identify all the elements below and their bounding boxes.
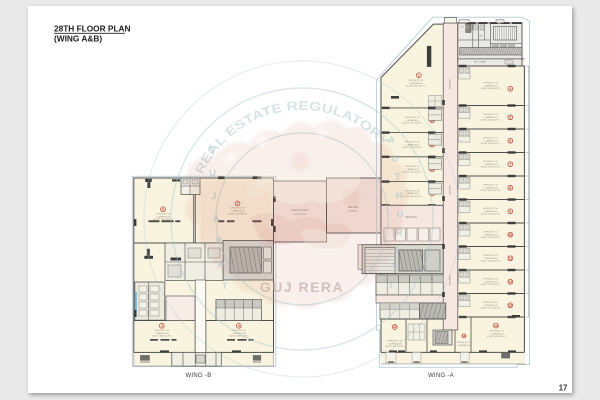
svg-text:OFFICE NO. 01: OFFICE NO. 01 — [405, 166, 421, 168]
svg-text:OFFICE NO. 01: OFFICE NO. 01 — [483, 83, 499, 85]
svg-text:OFFICE NO. 01: OFFICE NO. 01 — [483, 138, 499, 140]
svg-text:SQ.MT. (000 SQ.FT.): SQ.MT. (000 SQ.FT.) — [481, 214, 501, 216]
svg-text:C. AREA 00.00: C. AREA 00.00 — [405, 119, 420, 122]
svg-text:SQ.MT. (000 SQ.FT.): SQ.MT. (000 SQ.FT.) — [481, 167, 501, 169]
svg-text:C. AREA 00.00: C. AREA 00.00 — [409, 82, 424, 85]
svg-text:4: 4 — [238, 324, 240, 328]
svg-text:C. AREA 00.00: C. AREA 00.00 — [156, 215, 171, 218]
svg-text:C. AREA 00.00: C. AREA 00.00 — [484, 280, 499, 283]
svg-text:C. AREA 00.00: C. AREA 00.00 — [484, 233, 499, 236]
svg-text:C. AREA 00.00: C. AREA 00.00 — [405, 143, 420, 146]
svg-text:WING -A: WING -A — [428, 373, 454, 379]
svg-text:GUJ RERA: GUJ RERA — [260, 279, 344, 295]
svg-text:SQ.MT. (000 SQ.FT.): SQ.MT. (000 SQ.FT.) — [402, 123, 422, 125]
svg-text:C. AREA 00.00: C. AREA 00.00 — [155, 332, 170, 335]
svg-text:10: 10 — [508, 233, 512, 237]
svg-text:OFFICE NO. 01: OFFICE NO. 01 — [483, 208, 499, 210]
svg-text:7: 7 — [509, 162, 511, 166]
svg-text:SQ.MT. (000 SQ.FT.): SQ.MT. (000 SQ.FT.) — [481, 190, 501, 192]
svg-text:OFFICE NO. 01: OFFICE NO. 01 — [156, 214, 172, 216]
svg-text:OFFICE NO. 01: OFFICE NO. 01 — [457, 342, 473, 344]
svg-text:OFFICE NO. 01: OFFICE NO. 01 — [483, 114, 499, 116]
svg-text:C. AREA 00.00: C. AREA 00.00 — [484, 186, 499, 189]
svg-text:11: 11 — [509, 256, 513, 260]
svg-text:4: 4 — [509, 87, 511, 91]
svg-text:PASSAGE: PASSAGE — [449, 78, 452, 89]
svg-text:SERVICES: SERVICES — [405, 217, 417, 219]
svg-text:28TH FLOOR PLAN: 28TH FLOOR PLAN — [54, 24, 131, 34]
svg-text:C. AREA 00.00: C. AREA 00.00 — [484, 139, 499, 142]
svg-text:9: 9 — [509, 209, 511, 213]
svg-text:C. AREA 00.00: C. AREA 00.00 — [484, 84, 499, 87]
svg-text:SQ.MT. (000 SQ.FT.): SQ.MT. (000 SQ.FT.) — [153, 219, 173, 221]
svg-text:OFFICE NO. 01: OFFICE NO. 01 — [483, 255, 499, 257]
svg-text:13: 13 — [462, 334, 466, 338]
svg-text:SQ.MT. (000 SQ.FT.): SQ.MT. (000 SQ.FT.) — [481, 284, 501, 286]
svg-text:6: 6 — [509, 139, 511, 143]
svg-text:SQ.MT. (000 SQ.FT.): SQ.MT. (000 SQ.FT.) — [481, 308, 501, 310]
svg-text:A: A — [388, 135, 395, 145]
svg-text:17: 17 — [559, 384, 568, 393]
svg-text:C. AREA 00.00: C. AREA 00.00 — [490, 332, 505, 335]
svg-text:12: 12 — [508, 280, 512, 284]
svg-text:WING -B: WING -B — [185, 373, 211, 379]
svg-text:C. AREA 00.00: C. AREA 00.00 — [484, 116, 499, 119]
svg-text:OFFICE NO. 01: OFFICE NO. 01 — [154, 330, 170, 332]
svg-text:3: 3 — [162, 208, 164, 212]
svg-text:SQ.MT. (000 SQ.FT.): SQ.MT. (000 SQ.FT.) — [152, 336, 172, 338]
svg-text:11: 11 — [393, 325, 397, 329]
svg-text:OFFICE NO. 01: OFFICE NO. 01 — [483, 279, 499, 281]
svg-text:C. AREA 00.00: C. AREA 00.00 — [405, 168, 420, 171]
svg-text:3: 3 — [161, 324, 163, 328]
svg-text:T: T — [222, 281, 228, 292]
svg-text:Y: Y — [388, 280, 394, 290]
svg-text:T: T — [392, 263, 398, 273]
svg-text:SQ.MT. (000 SQ.FT.): SQ.MT. (000 SQ.FT.) — [481, 120, 501, 122]
svg-text:SQ.MT. (000 SQ.FT.): SQ.MT. (000 SQ.FT.) — [481, 88, 501, 90]
svg-text:C. AREA 00.00: C. AREA 00.00 — [484, 257, 499, 260]
svg-text:SQ.MT. (000 SQ.FT.): SQ.MT. (000 SQ.FT.) — [487, 336, 507, 338]
svg-text:PASSAGE: PASSAGE — [449, 184, 452, 195]
svg-text:SQ.MT. (000 SQ.FT.): SQ.MT. (000 SQ.FT.) — [481, 143, 501, 145]
svg-text:OFFICE NO. 01: OFFICE NO. 01 — [405, 142, 421, 144]
svg-text:LIFT LOBBY: LIFT LOBBY — [474, 62, 487, 64]
svg-text:OFFICE NO. 01: OFFICE NO. 01 — [483, 232, 499, 234]
svg-text:SQ.MT. (000 SQ.FT.): SQ.MT. (000 SQ.FT.) — [406, 86, 426, 88]
svg-text:OFFICE NO. 01: OFFICE NO. 01 — [409, 80, 425, 82]
svg-text:C. AREA 00.00: C. AREA 00.00 — [484, 163, 499, 166]
svg-text:14: 14 — [494, 324, 498, 328]
svg-text:SQ.MT. (000 SQ.FT.): SQ.MT. (000 SQ.FT.) — [481, 237, 501, 239]
svg-text:SQ.MT. (000 SQ.FT.): SQ.MT. (000 SQ.FT.) — [481, 261, 501, 263]
svg-text:C. AREA 00.00: C. AREA 00.00 — [484, 304, 499, 307]
svg-text:G: G — [208, 145, 215, 156]
svg-text:13: 13 — [508, 303, 512, 307]
svg-text:5: 5 — [509, 115, 511, 119]
svg-text:1: 1 — [418, 73, 420, 77]
svg-text:OFFICE NO. 01: OFFICE NO. 01 — [483, 185, 499, 187]
svg-text:I: I — [396, 245, 399, 255]
svg-text:OFFICE NO. 01: OFFICE NO. 01 — [483, 161, 499, 163]
svg-text:C. AREA 00.00: C. AREA 00.00 — [484, 210, 499, 213]
svg-text:C. AREA 00.00: C. AREA 00.00 — [457, 344, 472, 347]
svg-text:OFFICE NO. 01: OFFICE NO. 01 — [489, 331, 505, 333]
svg-text:8: 8 — [509, 186, 511, 190]
svg-text:(WING A&B): (WING A&B) — [54, 33, 102, 43]
svg-text:OFFICE NO. 01: OFFICE NO. 01 — [483, 302, 499, 304]
svg-text:OFFICE NO. 01: OFFICE NO. 01 — [405, 117, 421, 119]
